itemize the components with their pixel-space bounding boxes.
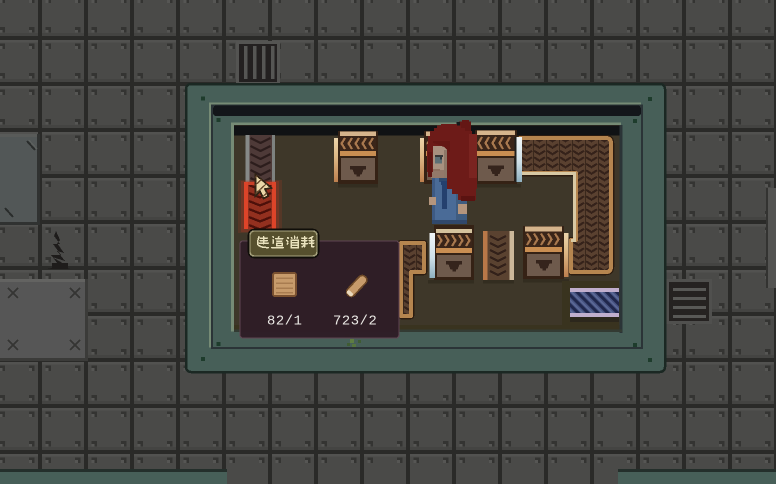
svg-text:723/2: 723/2 <box>333 314 377 330</box>
svg-text:82/1: 82/1 <box>267 314 303 330</box>
